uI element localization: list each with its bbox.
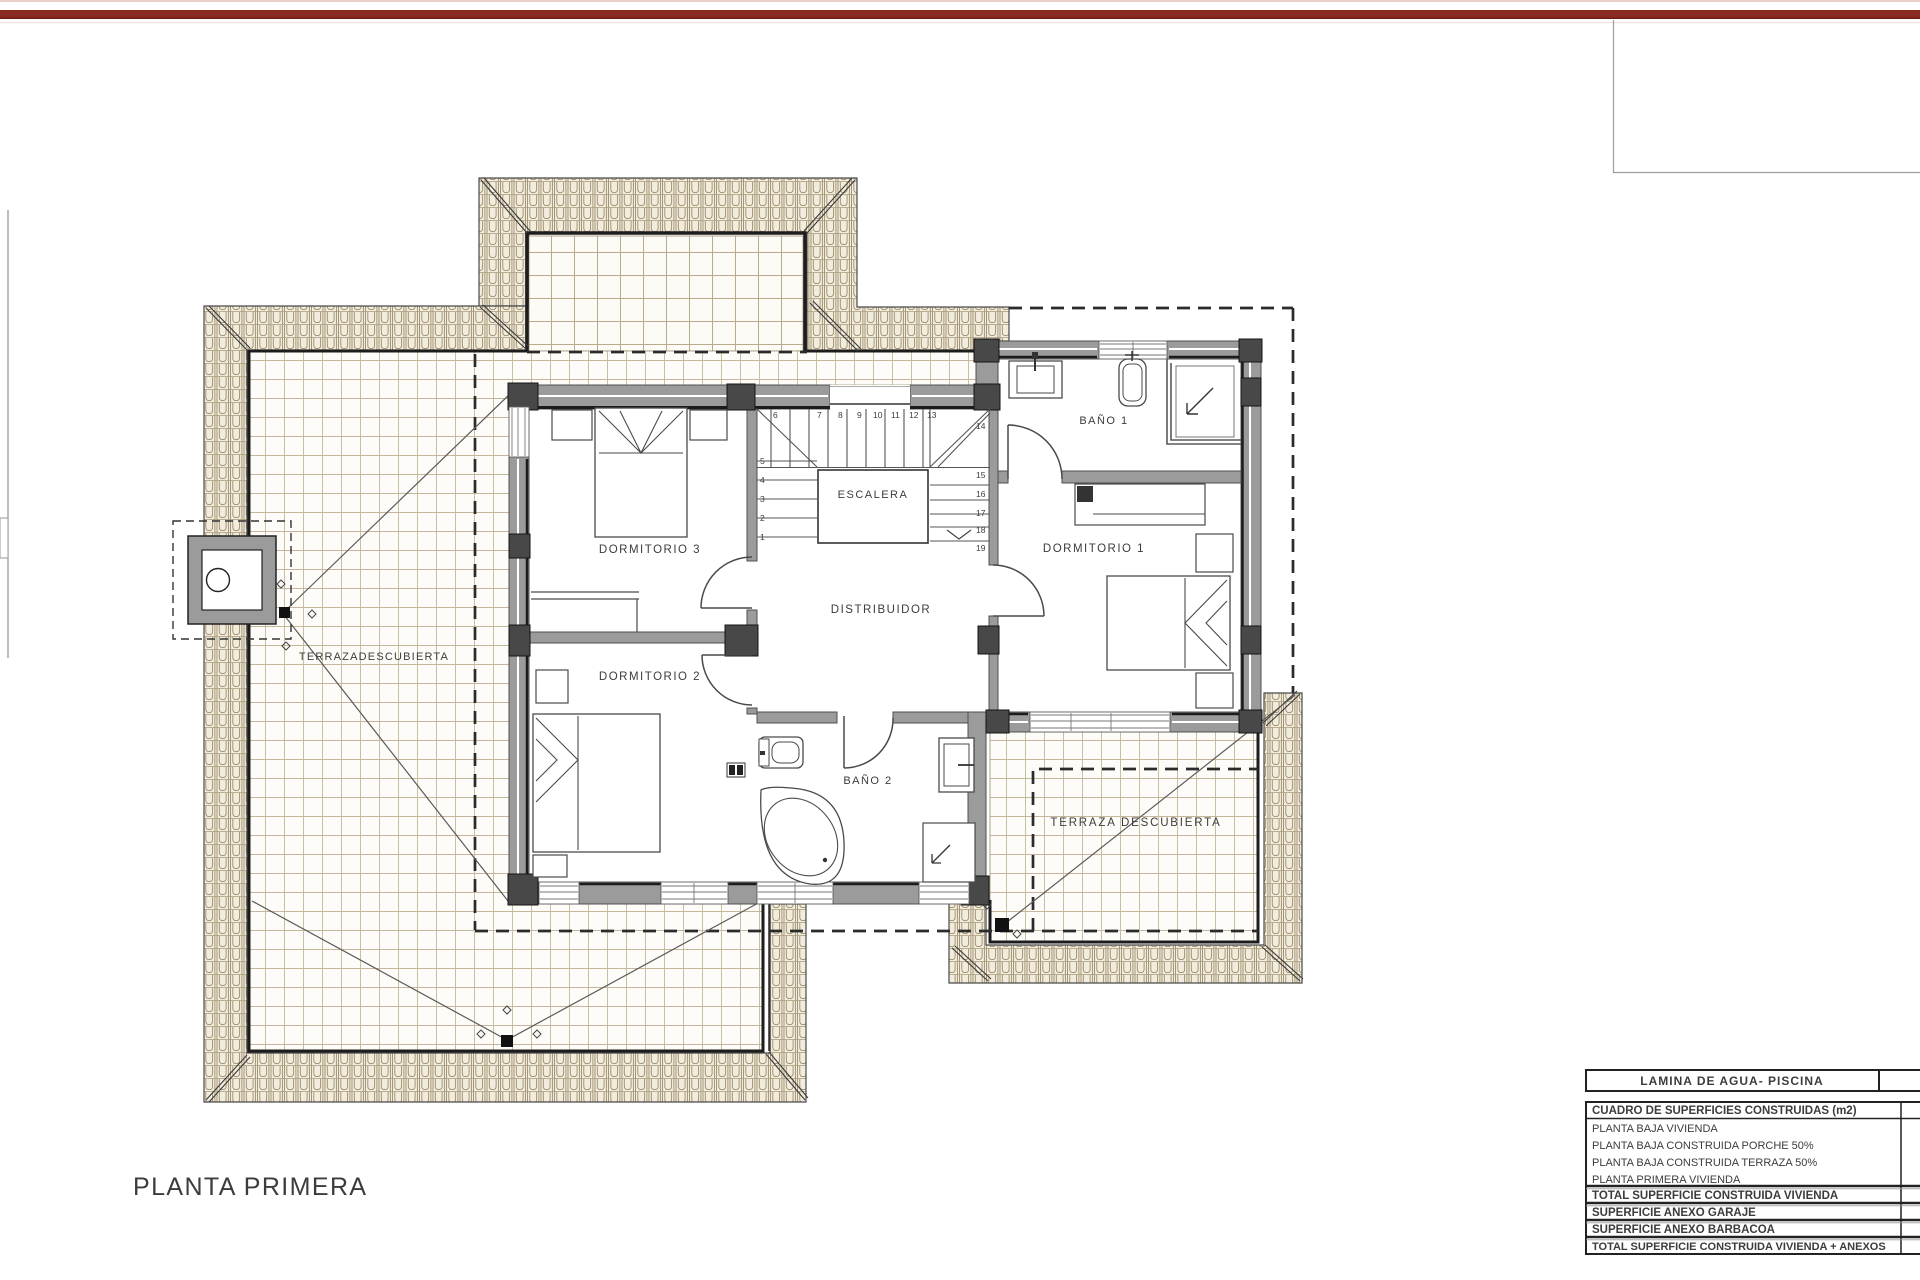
svg-text:8: 8 (838, 410, 843, 420)
svg-text:17: 17 (976, 508, 986, 518)
svg-text:13: 13 (927, 410, 937, 420)
svg-text:BAÑO 1: BAÑO 1 (1079, 414, 1128, 427)
svg-text:TERRAZA DESCUBIERTA: TERRAZA DESCUBIERTA (1050, 817, 1221, 829)
svg-text:2: 2 (760, 513, 765, 523)
svg-text:12: 12 (909, 410, 919, 420)
svg-text:PLANTA PRIMERA VIVIENDA: PLANTA PRIMERA VIVIENDA (1592, 1174, 1741, 1186)
svg-text:SUPERFICIE ANEXO BARBACOA: SUPERFICIE ANEXO BARBACOA (1592, 1224, 1775, 1236)
svg-text:7: 7 (817, 410, 822, 420)
svg-text:15: 15 (976, 470, 986, 480)
svg-text:PLANTA BAJA CONSTRUIDA PORCHE: PLANTA BAJA CONSTRUIDA PORCHE 50% (1592, 1140, 1814, 1152)
svg-text:TOTAL SUPERFICIE CONSTRUIDA VI: TOTAL SUPERFICIE CONSTRUIDA VIVIENDA + A… (1592, 1241, 1886, 1253)
svg-text:19: 19 (976, 543, 986, 553)
svg-text:BAÑO 2: BAÑO 2 (843, 774, 892, 787)
svg-text:16: 16 (976, 489, 986, 499)
svg-text:DORMITORIO 2: DORMITORIO 2 (599, 671, 701, 683)
svg-text:11: 11 (891, 410, 900, 420)
svg-text:PLANTA BAJA CONSTRUIDA TERRAZA: PLANTA BAJA CONSTRUIDA TERRAZA 50% (1592, 1157, 1817, 1169)
svg-text:9: 9 (857, 410, 862, 420)
svg-text:PLANTA BAJA VIVIENDA: PLANTA BAJA VIVIENDA (1592, 1123, 1718, 1135)
svg-text:ESCALERA: ESCALERA (838, 489, 909, 501)
svg-text:4: 4 (760, 475, 765, 485)
svg-text:18: 18 (976, 525, 986, 535)
svg-text:DORMITORIO 1: DORMITORIO 1 (1043, 543, 1145, 555)
svg-text:SUPERFICIE ANEXO GARAJE: SUPERFICIE ANEXO GARAJE (1592, 1207, 1756, 1219)
svg-text:14: 14 (976, 421, 986, 431)
svg-text:PLANTA PRIMERA: PLANTA PRIMERA (133, 1173, 367, 1201)
svg-text:5: 5 (760, 456, 765, 466)
svg-text:6: 6 (773, 410, 778, 420)
svg-text:3: 3 (760, 494, 765, 504)
svg-text:10: 10 (873, 410, 883, 420)
svg-text:TOTAL SUPERFICIE CONSTRUIDA VI: TOTAL SUPERFICIE CONSTRUIDA VIVIENDA (1592, 1190, 1838, 1202)
svg-text:TERRAZADESCUBIERTA: TERRAZADESCUBIERTA (299, 651, 449, 663)
svg-text:1: 1 (760, 532, 765, 542)
svg-text:DISTRIBUIDOR: DISTRIBUIDOR (831, 604, 931, 616)
svg-text:LAMINA DE AGUA- PISCINA: LAMINA DE AGUA- PISCINA (1640, 1074, 1823, 1088)
svg-text:CUADRO DE SUPERFICIES CONSTRUI: CUADRO DE SUPERFICIES CONSTRUIDAS (m2) (1592, 1105, 1857, 1117)
svg-text:DORMITORIO 3: DORMITORIO 3 (599, 544, 701, 556)
